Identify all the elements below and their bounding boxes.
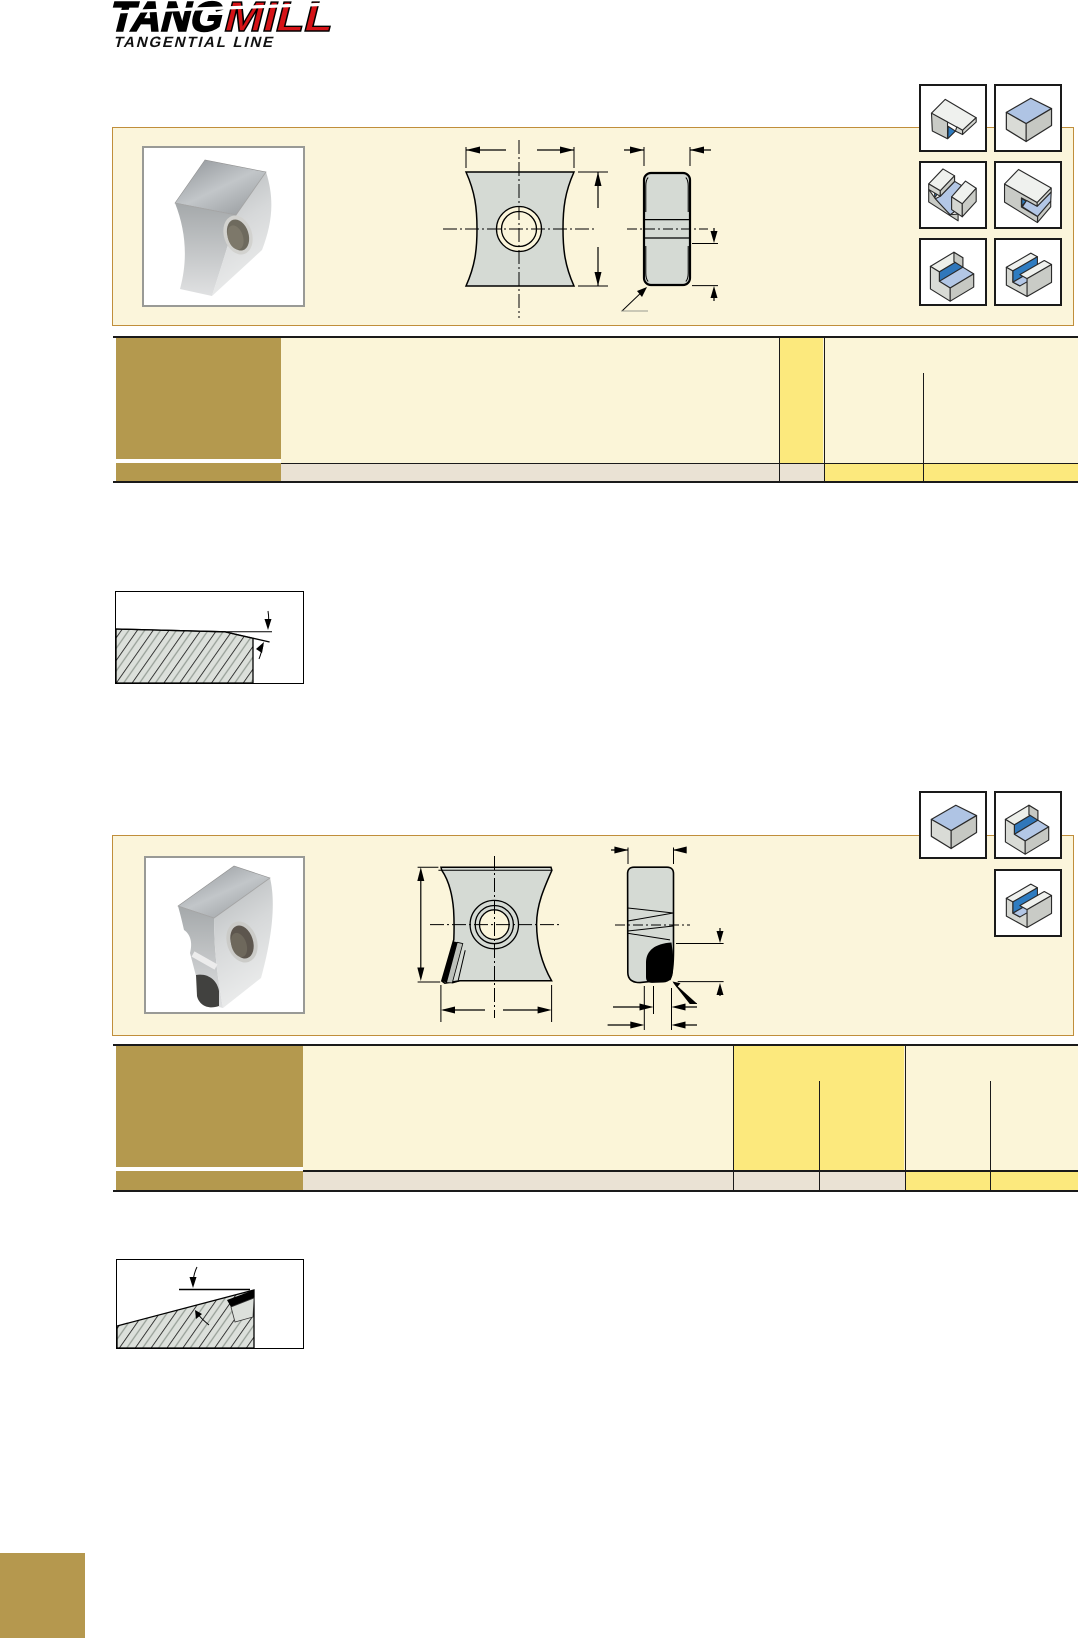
svg-text:TANGENTIAL LINE: TANGENTIAL LINE bbox=[112, 34, 277, 51]
